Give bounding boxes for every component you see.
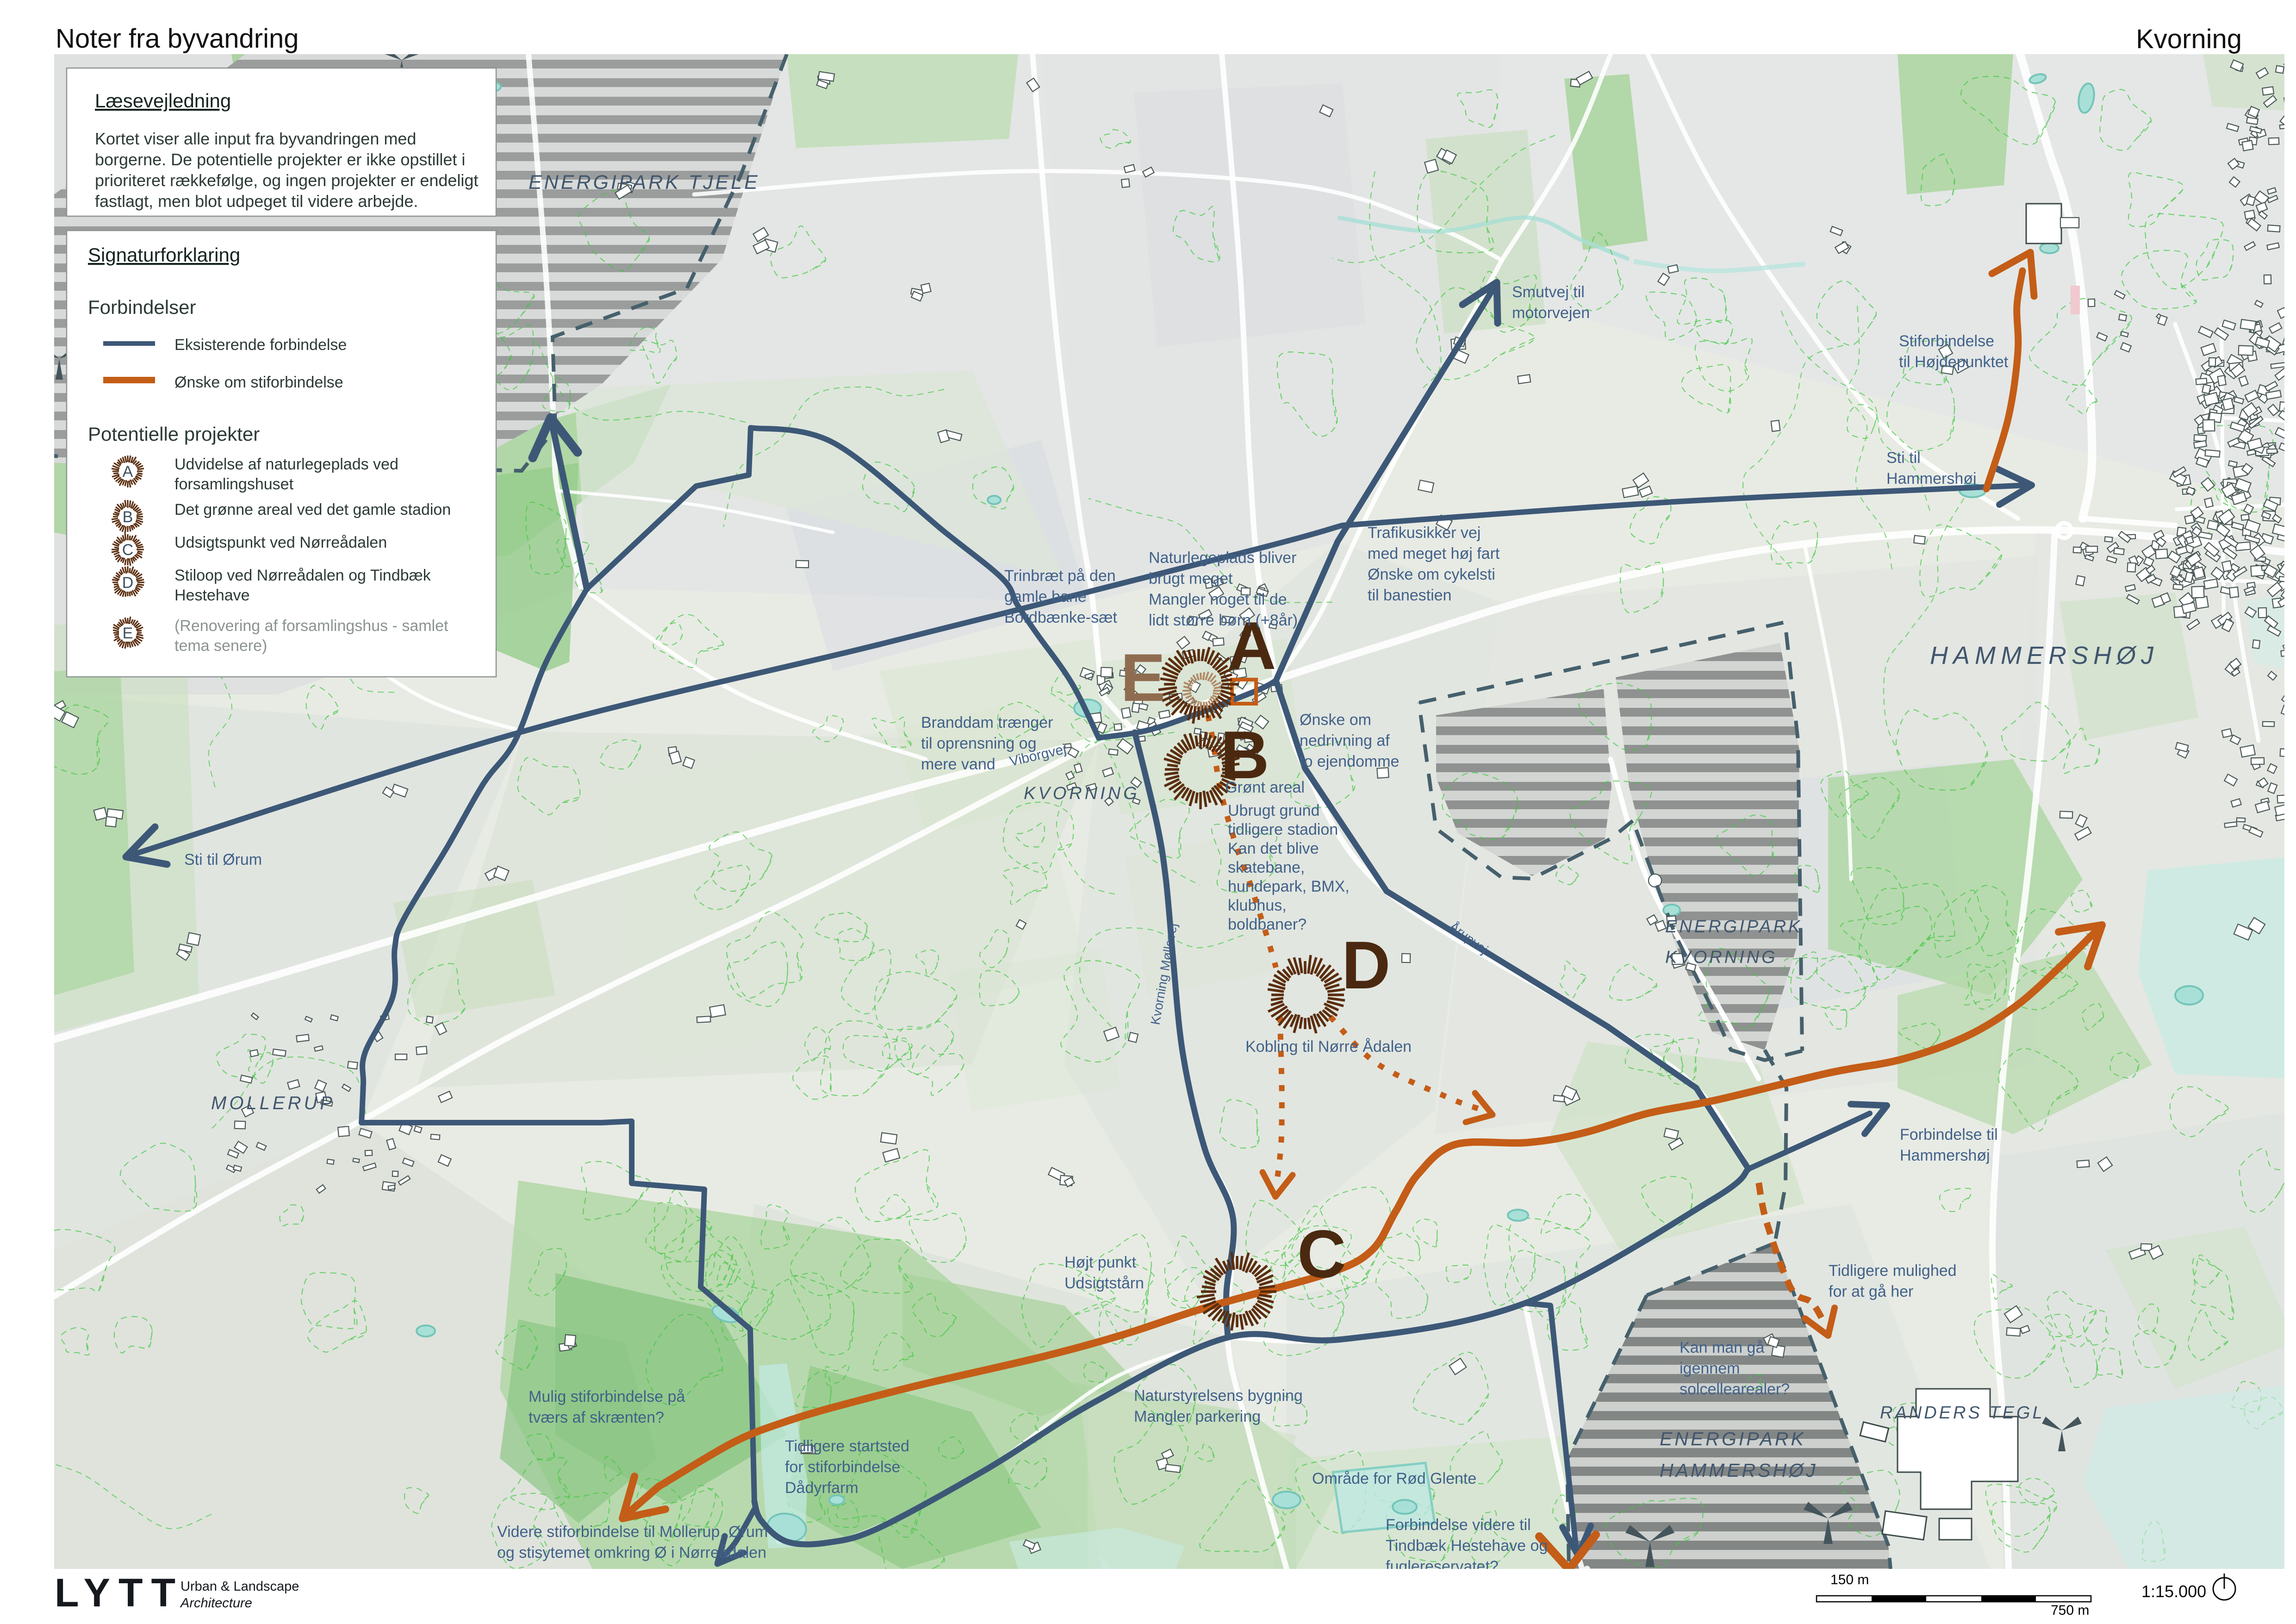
svg-text:Noter fra byvandring: Noter fra byvandring bbox=[56, 24, 299, 54]
svg-text:Urban & Landscape: Urban & Landscape bbox=[180, 1579, 299, 1594]
svg-text:Grønt areal: Grønt areal bbox=[1225, 779, 1305, 796]
svg-text:Sti til Ørum: Sti til Ørum bbox=[184, 851, 262, 868]
svg-text:HAMMERSHØJ: HAMMERSHØJ bbox=[1930, 642, 2159, 669]
svg-text:ENERGIPARK TJELE: ENERGIPARK TJELE bbox=[529, 171, 760, 194]
svg-text:A: A bbox=[123, 463, 133, 481]
svg-text:Udsigtspunkt ved Nørreådalen: Udsigtspunkt ved Nørreådalen bbox=[174, 534, 387, 551]
svg-text:RANDERS TEGL: RANDERS TEGL bbox=[1880, 1403, 2045, 1423]
svg-text:KVORNING: KVORNING bbox=[1665, 948, 1778, 967]
svg-text:D: D bbox=[1342, 927, 1390, 1003]
svg-text:E: E bbox=[1120, 640, 1165, 715]
svg-text:Potentielle projekter: Potentielle projekter bbox=[88, 423, 260, 445]
svg-text:Det grønne areal ved det gamle: Det grønne areal ved det gamle stadion bbox=[174, 501, 451, 518]
svg-text:1:15.000: 1:15.000 bbox=[2141, 1582, 2206, 1601]
svg-text:Læsevejledning: Læsevejledning bbox=[95, 90, 231, 112]
svg-text:Eksisterende forbindelse: Eksisterende forbindelse bbox=[174, 336, 347, 354]
svg-text:Kobling til Nørre Ådalen: Kobling til Nørre Ådalen bbox=[1245, 1038, 1412, 1056]
svg-text:Forbindelser: Forbindelser bbox=[88, 296, 196, 318]
svg-text:B: B bbox=[123, 508, 133, 526]
svg-text:Architecture: Architecture bbox=[180, 1596, 252, 1611]
svg-text:MOLLERUP: MOLLERUP bbox=[211, 1093, 335, 1113]
svg-text:Kvorning: Kvorning bbox=[2136, 24, 2242, 54]
svg-text:Signaturforklaring: Signaturforklaring bbox=[88, 244, 240, 266]
svg-text:D: D bbox=[122, 574, 134, 592]
svg-text:LYTT: LYTT bbox=[55, 1571, 184, 1615]
svg-text:KVORNING: KVORNING bbox=[1024, 784, 1140, 803]
svg-text:750 m: 750 m bbox=[2051, 1603, 2089, 1618]
svg-text:Ønske om stiforbindelse: Ønske om stiforbindelse bbox=[174, 374, 343, 391]
svg-text:C: C bbox=[1297, 1216, 1346, 1292]
svg-text:ENERGIPARK: ENERGIPARK bbox=[1660, 1428, 1806, 1449]
svg-text:Område for Rød Glente: Område for Rød Glente bbox=[1312, 1470, 1476, 1487]
svg-text:ENERGIPARK: ENERGIPARK bbox=[1665, 917, 1802, 937]
svg-text:C: C bbox=[122, 541, 134, 559]
svg-text:E: E bbox=[123, 625, 133, 642]
svg-text:HAMMERSHØJ: HAMMERSHØJ bbox=[1660, 1460, 1818, 1481]
svg-text:150 m: 150 m bbox=[1830, 1572, 1869, 1587]
